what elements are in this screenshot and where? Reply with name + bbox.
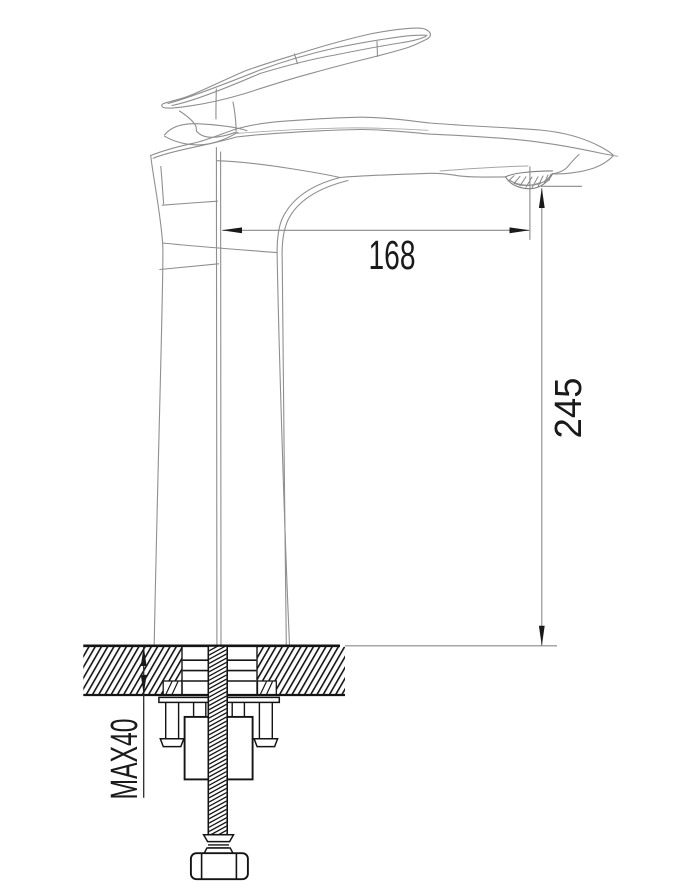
svg-text:MAX40: MAX40 [104,719,146,800]
svg-text:245: 245 [548,378,590,439]
svg-text:168: 168 [369,232,416,278]
